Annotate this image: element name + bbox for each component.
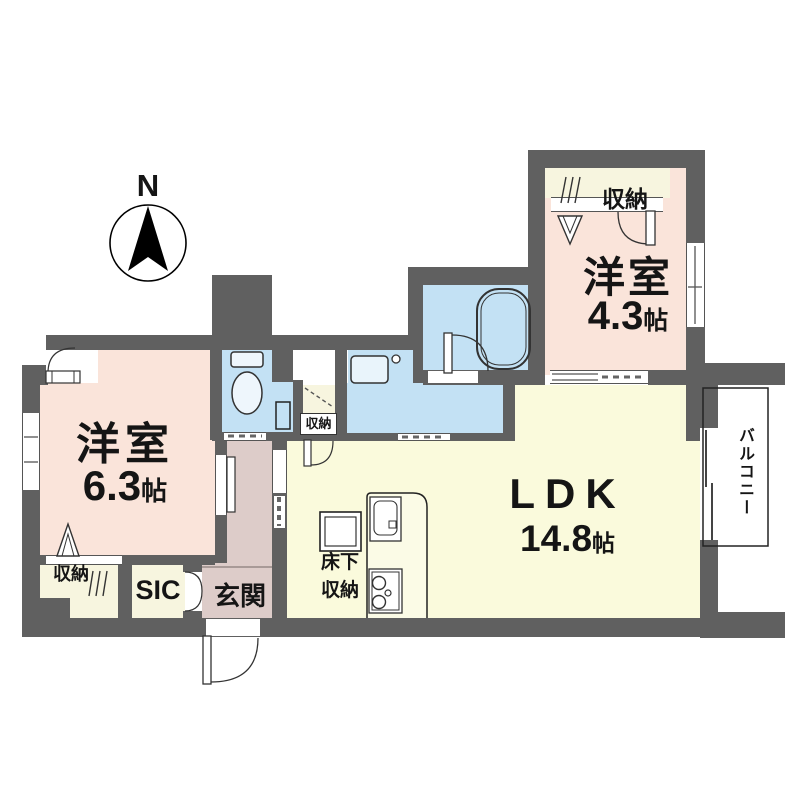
- underfloor-line2: 収納: [321, 580, 359, 601]
- wall-segment: [215, 440, 227, 455]
- bedroom1-floor-upper: [98, 350, 210, 383]
- wall-segment: [46, 335, 423, 350]
- wall-segment: [215, 618, 706, 637]
- ldk-name: LDK: [495, 470, 640, 518]
- wall-segment: [215, 515, 227, 563]
- entrance-label: 玄関: [208, 576, 272, 613]
- ldk-size-unit: 帖: [592, 530, 615, 556]
- wall-segment: [413, 350, 423, 383]
- wall-segment: [700, 612, 785, 638]
- wall-segment: [700, 363, 785, 385]
- closet-top-right-label: 収納: [585, 180, 665, 214]
- casement-window-gap: [46, 350, 82, 383]
- wall-segment: [37, 555, 46, 565]
- washroom-door-gap: [398, 433, 450, 441]
- wall-segment: [212, 432, 224, 441]
- wall-segment: [686, 168, 705, 243]
- bathroom-threshold: [428, 371, 478, 383]
- bathroom-floor: [423, 285, 533, 370]
- window-bedroom1-left: [22, 413, 40, 490]
- wall-segment: [272, 350, 293, 382]
- wall-segment: [183, 611, 202, 618]
- ldk-size: 14.8帖: [495, 518, 640, 560]
- wall-segment: [272, 440, 287, 450]
- bedroom1-door-gap: [215, 455, 227, 515]
- wall-segment: [700, 385, 718, 428]
- closet-bedroom1-label: 収納: [46, 560, 96, 586]
- bedroom1-size-unit: 帖: [141, 476, 167, 506]
- bedroom2-size-value: 4.3: [588, 294, 644, 338]
- window-bedroom2-bottom: [550, 370, 648, 384]
- toilet-nook-floor: [272, 382, 293, 432]
- wall-segment: [408, 267, 545, 285]
- balcony-sliding-window: [700, 428, 718, 540]
- wall-kitchen-stub: [402, 556, 427, 572]
- wall-segment: [22, 365, 48, 385]
- entrance-door-gap: [206, 619, 260, 636]
- ldk-floor-upper-arm: [512, 385, 688, 441]
- bedroom2-size-unit: 帖: [643, 308, 668, 335]
- bedroom1-size-value: 6.3: [83, 462, 141, 509]
- wall-segment: [37, 598, 70, 618]
- closet-hallway-label: 収納: [300, 413, 337, 435]
- underfloor-storage-label: 床下収納: [312, 549, 368, 604]
- compass-north-label: N: [130, 168, 166, 204]
- floor-plan: N 収納 洋室 4.3帖 洋室 6.3帖 LDK 14.8帖 収納 収納 床下収…: [0, 0, 800, 800]
- wall-segment: [347, 433, 398, 441]
- ldk-size-value: 14.8: [520, 518, 592, 559]
- washroom-floor: [347, 383, 503, 433]
- toilet-door-gap: [224, 432, 266, 441]
- shoe-closet-door-icon: [185, 572, 202, 611]
- underfloor-line1: 床下: [321, 552, 359, 573]
- compass-icon: [110, 205, 186, 281]
- entrance-step-line: [202, 566, 272, 568]
- wall-segment: [700, 540, 718, 618]
- bedroom2-size: 4.3帖: [558, 294, 698, 339]
- entrance-door-icon: [203, 636, 258, 684]
- closet-bedroom1-floor-l: [70, 598, 118, 618]
- pocket-door-zone: [274, 496, 285, 528]
- wall-segment: [210, 348, 222, 440]
- balcony-label: バルコニー: [732, 414, 756, 529]
- wall-segment: [22, 385, 40, 413]
- wall-segment: [528, 150, 705, 168]
- hallway-ldk-door-gap: [272, 450, 287, 493]
- wall-segment: [183, 563, 202, 572]
- vanity-floor: [348, 350, 413, 383]
- wall-pipe-space: [212, 275, 272, 335]
- toilet-floor: [222, 348, 272, 432]
- shoe-closet-label: SIC: [130, 575, 186, 606]
- wall-segment: [648, 370, 705, 385]
- hallway-floor: [227, 440, 272, 563]
- bedroom1-size: 6.3帖: [40, 462, 210, 510]
- wall-segment: [22, 618, 215, 637]
